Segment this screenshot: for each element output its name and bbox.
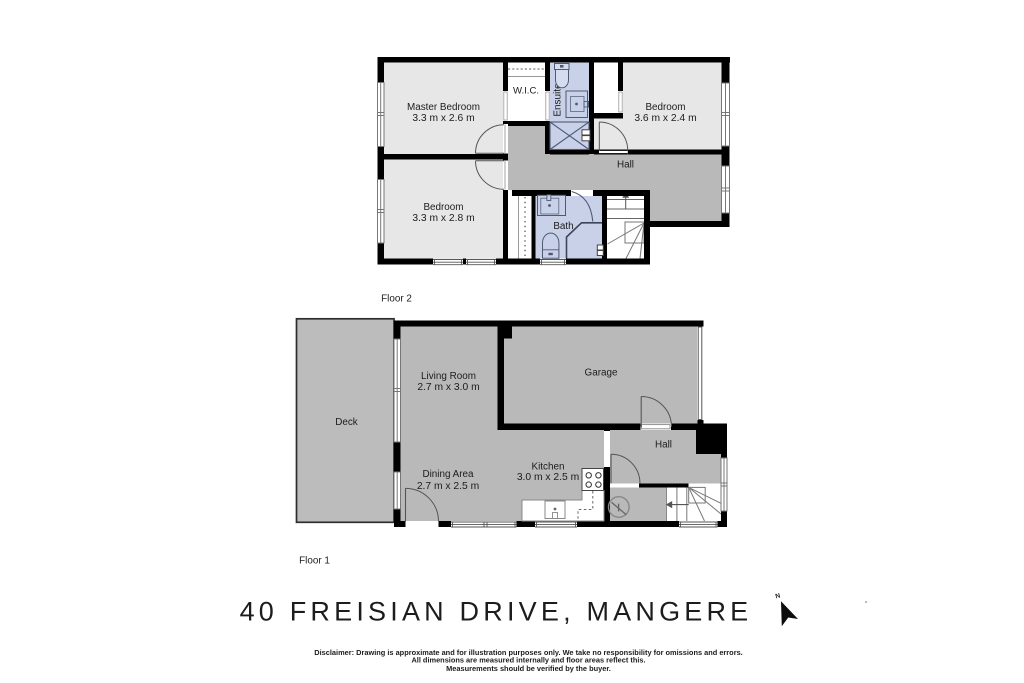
svg-text:Measurements should be verifie: Measurements should be verified by the b… [446,664,611,673]
svg-text:Floor 2: Floor 2 [381,294,412,305]
svg-text:Bedroom: Bedroom [423,202,463,213]
svg-text:3.3 m x 2.6 m: 3.3 m x 2.6 m [412,113,474,124]
svg-text:Master Bedroom: Master Bedroom [407,102,480,113]
svg-text:W.I.C.: W.I.C. [513,86,539,97]
svg-text:Hall: Hall [655,439,672,450]
svg-text:Kitchen: Kitchen [532,462,565,473]
svg-text:Deck: Deck [335,417,358,428]
svg-text:Hall: Hall [617,160,634,171]
svg-text:Dining Area: Dining Area [422,469,474,480]
svg-text:Bath: Bath [553,221,573,232]
svg-text:Bedroom: Bedroom [645,102,685,113]
svg-text:3.6 m x 2.4 m: 3.6 m x 2.4 m [634,113,696,124]
svg-text:40 FREISIAN DRIVE, MANGERE: 40 FREISIAN DRIVE, MANGERE [240,596,753,626]
svg-text:Garage: Garage [585,368,618,379]
svg-text:3.3 m x 2.8 m: 3.3 m x 2.8 m [412,213,474,224]
svg-text:Living Room: Living Room [421,371,476,382]
svg-text:Floor 1: Floor 1 [299,556,330,567]
svg-text:2.7 m x 3.0 m: 2.7 m x 3.0 m [417,382,479,393]
svg-text:2.7 m x 2.5 m: 2.7 m x 2.5 m [417,481,479,492]
svg-text:3.0 m x 2.5 m: 3.0 m x 2.5 m [517,472,579,483]
